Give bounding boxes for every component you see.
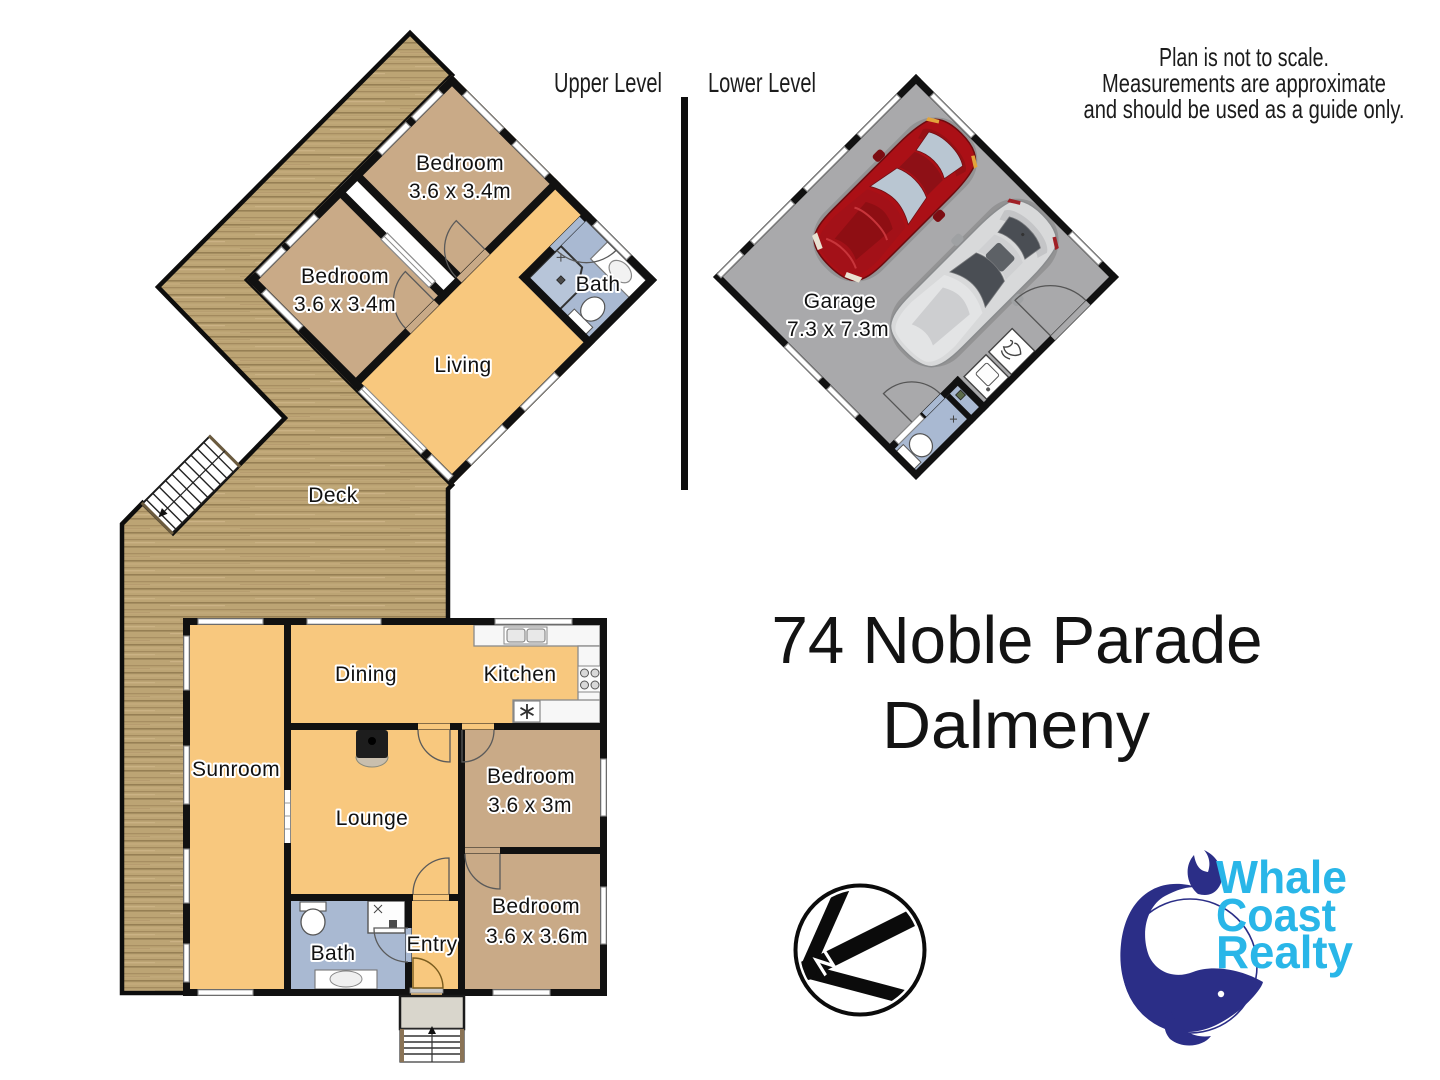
svg-text:Lower Level: Lower Level xyxy=(708,67,816,98)
svg-text:Dining: Dining xyxy=(335,663,397,686)
svg-text:Upper Level: Upper Level xyxy=(554,67,662,98)
svg-text:Lounge: Lounge xyxy=(336,807,408,830)
svg-text:Bath: Bath xyxy=(576,273,621,296)
svg-text:Bath: Bath xyxy=(311,942,356,965)
svg-text:3.6 x 3m: 3.6 x 3m xyxy=(488,794,572,817)
svg-text:3.6 x 3.4m: 3.6 x 3.4m xyxy=(409,180,511,203)
svg-text:Bedroom: Bedroom xyxy=(492,895,580,918)
svg-text:Living: Living xyxy=(434,354,491,377)
svg-text:Deck: Deck xyxy=(308,484,358,507)
svg-text:Dalmeny: Dalmeny xyxy=(882,688,1151,763)
svg-text:Bedroom: Bedroom xyxy=(301,265,389,288)
svg-text:74 Noble Parade: 74 Noble Parade xyxy=(772,603,1263,678)
svg-text:and should be used as a guide: and should be used as a guide only. xyxy=(1084,94,1405,124)
svg-text:Kitchen: Kitchen xyxy=(484,663,557,686)
svg-text:Sunroom: Sunroom xyxy=(192,758,280,781)
svg-text:Garage: Garage xyxy=(804,290,876,313)
svg-text:3.6 x 3.6m: 3.6 x 3.6m xyxy=(486,925,588,948)
svg-text:Entry: Entry xyxy=(406,933,457,956)
svg-text:Realty: Realty xyxy=(1216,926,1353,978)
svg-text:7.3 x 7.3m: 7.3 x 7.3m xyxy=(787,318,889,341)
svg-text:3.6 x 3.4m: 3.6 x 3.4m xyxy=(294,293,396,316)
svg-text:Bedroom: Bedroom xyxy=(416,152,504,175)
svg-text:Bedroom: Bedroom xyxy=(487,765,575,788)
